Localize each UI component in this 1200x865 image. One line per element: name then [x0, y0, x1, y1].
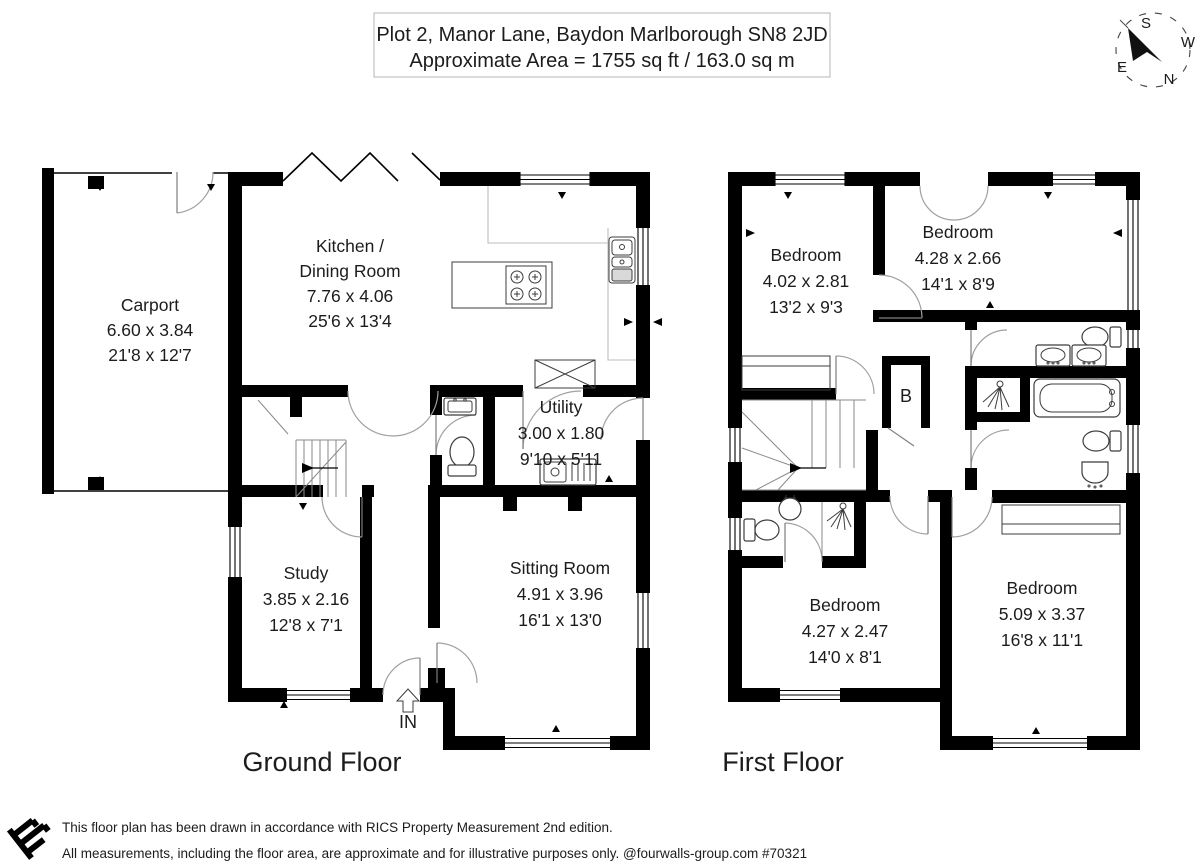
b2-imperial: 14'1 x 8'9: [921, 274, 995, 294]
brand-logo: [9, 811, 55, 858]
bedroom-top-right-label: Bedroom 4.28 x 2.66 14'1 x 8'9: [915, 222, 1002, 294]
study-imperial: 12'8 x 7'1: [269, 615, 343, 635]
compass-east: E: [1117, 59, 1127, 76]
floorplan-page: Plot 2, Manor Lane, Baydon Marlborough S…: [0, 0, 1200, 865]
first-floor-title: First Floor: [722, 747, 844, 777]
utility-label: Utility 3.00 x 1.80 9'10 x 5'11: [518, 397, 605, 469]
kitchen-imperial: 25'6 x 13'4: [308, 311, 392, 331]
bathroom-fixtures: [983, 327, 1121, 488]
entrance-marker: IN: [397, 689, 419, 732]
compass-north: N: [1164, 71, 1175, 88]
compass-west: W: [1181, 34, 1196, 51]
first-stairs: [742, 400, 866, 490]
compass-south: S: [1141, 15, 1151, 32]
carport-metric: 6.60 x 3.84: [107, 320, 194, 340]
b2-name: Bedroom: [922, 222, 993, 242]
b4-name: Bedroom: [1006, 578, 1077, 598]
sitting-imperial: 16'1 x 13'0: [518, 610, 602, 630]
compass-icon: S W N E: [1116, 13, 1196, 88]
bedroom-top-left-label: Bedroom 4.02 x 2.81 13'2 x 9'3: [763, 245, 850, 317]
study-name: Study: [284, 563, 329, 583]
b2-metric: 4.28 x 2.66: [915, 248, 1002, 268]
kitchen-sink: [609, 237, 635, 283]
utility-metric: 3.00 x 1.80: [518, 423, 605, 443]
bedroom-bottom-left-label: Bedroom 4.27 x 2.47 14'0 x 8'1: [802, 595, 889, 667]
ground-floor-title: Ground Floor: [242, 747, 401, 777]
b3-name: Bedroom: [809, 595, 880, 615]
study-metric: 3.85 x 2.16: [263, 589, 350, 609]
carport-name: Carport: [121, 295, 179, 315]
b1-name: Bedroom: [770, 245, 841, 265]
sitting-room-label: Sitting Room 4.91 x 3.96 16'1 x 13'0: [510, 558, 610, 630]
b1-imperial: 13'2 x 9'3: [769, 297, 843, 317]
b4-imperial: 16'8 x 11'1: [1001, 630, 1083, 650]
bedroom-bottom-right-label: Bedroom 5.09 x 3.37 16'8 x 11'1: [999, 578, 1086, 650]
entrance-in-label: IN: [399, 712, 417, 732]
kitchen-metric: 7.76 x 4.06: [307, 286, 394, 306]
utility-name: Utility: [540, 397, 583, 417]
kitchen-name-1: Kitchen /: [316, 236, 384, 256]
sitting-metric: 4.91 x 3.96: [517, 584, 604, 604]
boiler-label: B: [900, 386, 912, 406]
b4-metric: 5.09 x 3.37: [999, 604, 1086, 624]
b3-imperial: 14'0 x 8'1: [808, 647, 882, 667]
title-line-1: Plot 2, Manor Lane, Baydon Marlborough S…: [376, 24, 827, 46]
sitting-name: Sitting Room: [510, 558, 610, 578]
kitchen-island: [452, 262, 552, 308]
kitchen-appliance: [535, 360, 595, 388]
carport-label: Carport 6.60 x 3.84 21'8 x 12'7: [107, 295, 194, 365]
utility-imperial: 9'10 x 5'11: [520, 449, 602, 469]
wc-fixtures: [444, 398, 476, 476]
first-floor-plan: Bedroom 4.02 x 2.81 13'2 x 9'3 Bedroom 4…: [722, 172, 1140, 777]
title-box: Plot 2, Manor Lane, Baydon Marlborough S…: [374, 13, 830, 77]
kitchen-label: Kitchen / Dining Room 7.76 x 4.06 25'6 x…: [299, 236, 400, 331]
ground-floor-plan: Carport 6.60 x 3.84 21'8 x 12'7 Kitchen …: [42, 153, 662, 777]
bifold-doors: [283, 153, 440, 181]
study-label: Study 3.85 x 2.16 12'8 x 7'1: [263, 563, 350, 635]
footer: This floor plan has been drawn in accord…: [9, 811, 807, 861]
title-line-2: Approximate Area = 1755 sq ft / 163.0 sq…: [409, 50, 794, 72]
footer-line-2: All measurements, including the floor ar…: [62, 846, 807, 861]
floorplan-drawing: Plot 2, Manor Lane, Baydon Marlborough S…: [0, 0, 1200, 865]
carport-imperial: 21'8 x 12'7: [108, 345, 192, 365]
kitchen-name-2: Dining Room: [299, 261, 400, 281]
b3-metric: 4.27 x 2.47: [802, 621, 889, 641]
b1-metric: 4.02 x 2.81: [763, 271, 850, 291]
footer-line-1: This floor plan has been drawn in accord…: [62, 820, 613, 835]
